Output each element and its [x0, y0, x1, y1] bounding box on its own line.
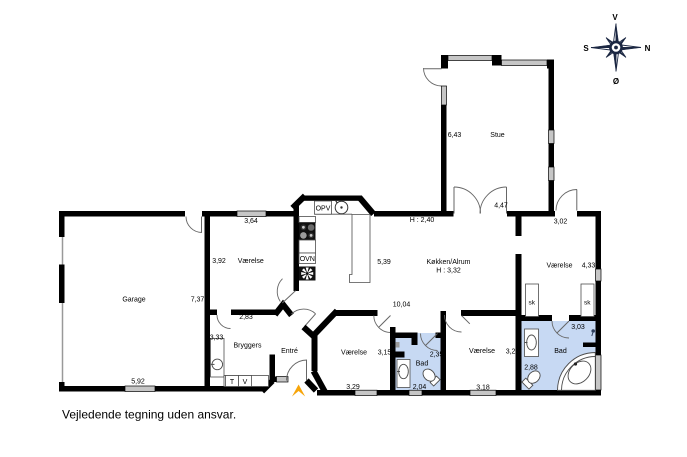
svg-text:Bad: Bad [554, 348, 567, 355]
svg-text:2,35: 2,35 [430, 352, 444, 359]
svg-text:3,29: 3,29 [346, 384, 360, 391]
svg-text:H : 2,40: H : 2,40 [410, 217, 435, 224]
svg-text:V: V [612, 13, 618, 22]
svg-text:3,64: 3,64 [244, 218, 258, 225]
svg-text:5,39: 5,39 [377, 259, 391, 266]
svg-text:3,15: 3,15 [378, 350, 392, 357]
svg-text:3,25: 3,25 [506, 349, 520, 356]
svg-text:V: V [243, 379, 248, 386]
svg-text:2,88: 2,88 [524, 365, 538, 372]
svg-text:6,43: 6,43 [448, 132, 462, 139]
svg-text:Stue: Stue [490, 132, 505, 139]
svg-text:Værelse: Værelse [238, 258, 264, 265]
svg-text:Bryggers: Bryggers [233, 343, 262, 350]
svg-text:10,04: 10,04 [393, 302, 411, 309]
svg-text:sk: sk [529, 300, 536, 307]
svg-text:3,03: 3,03 [571, 324, 585, 331]
svg-text:S: S [583, 44, 589, 53]
svg-text:Køkken/Alrum: Køkken/Alrum [427, 259, 471, 266]
svg-text:OVN: OVN [300, 256, 315, 263]
svg-text:OPV: OPV [316, 206, 331, 213]
svg-text:N: N [645, 44, 651, 53]
svg-text:Garage: Garage [122, 297, 145, 304]
svg-text:Entré: Entré [281, 348, 298, 355]
svg-text:sk: sk [584, 300, 591, 307]
svg-text:Bad: Bad [416, 361, 429, 368]
svg-text:Værelse: Værelse [469, 348, 495, 355]
svg-text:3,02: 3,02 [554, 219, 568, 226]
svg-text:3,33: 3,33 [210, 335, 224, 342]
svg-text:4,33: 4,33 [582, 263, 596, 270]
svg-text:5,92: 5,92 [131, 379, 145, 386]
svg-text:T: T [230, 379, 235, 386]
svg-text:Ø: Ø [613, 77, 619, 86]
svg-text:3,18: 3,18 [476, 384, 490, 391]
svg-text:2,83: 2,83 [239, 314, 253, 321]
svg-text:3,92: 3,92 [212, 258, 226, 265]
svg-text:4,47: 4,47 [494, 203, 508, 210]
svg-text:H : 3,32: H : 3,32 [436, 268, 461, 275]
svg-text:7,37: 7,37 [191, 297, 205, 304]
svg-text:Værelse: Værelse [546, 263, 572, 270]
svg-text:Vejledende tegning uden ansvar: Vejledende tegning uden ansvar. [62, 408, 236, 422]
svg-text:Værelse: Værelse [341, 350, 367, 357]
svg-text:2,04: 2,04 [413, 384, 427, 391]
